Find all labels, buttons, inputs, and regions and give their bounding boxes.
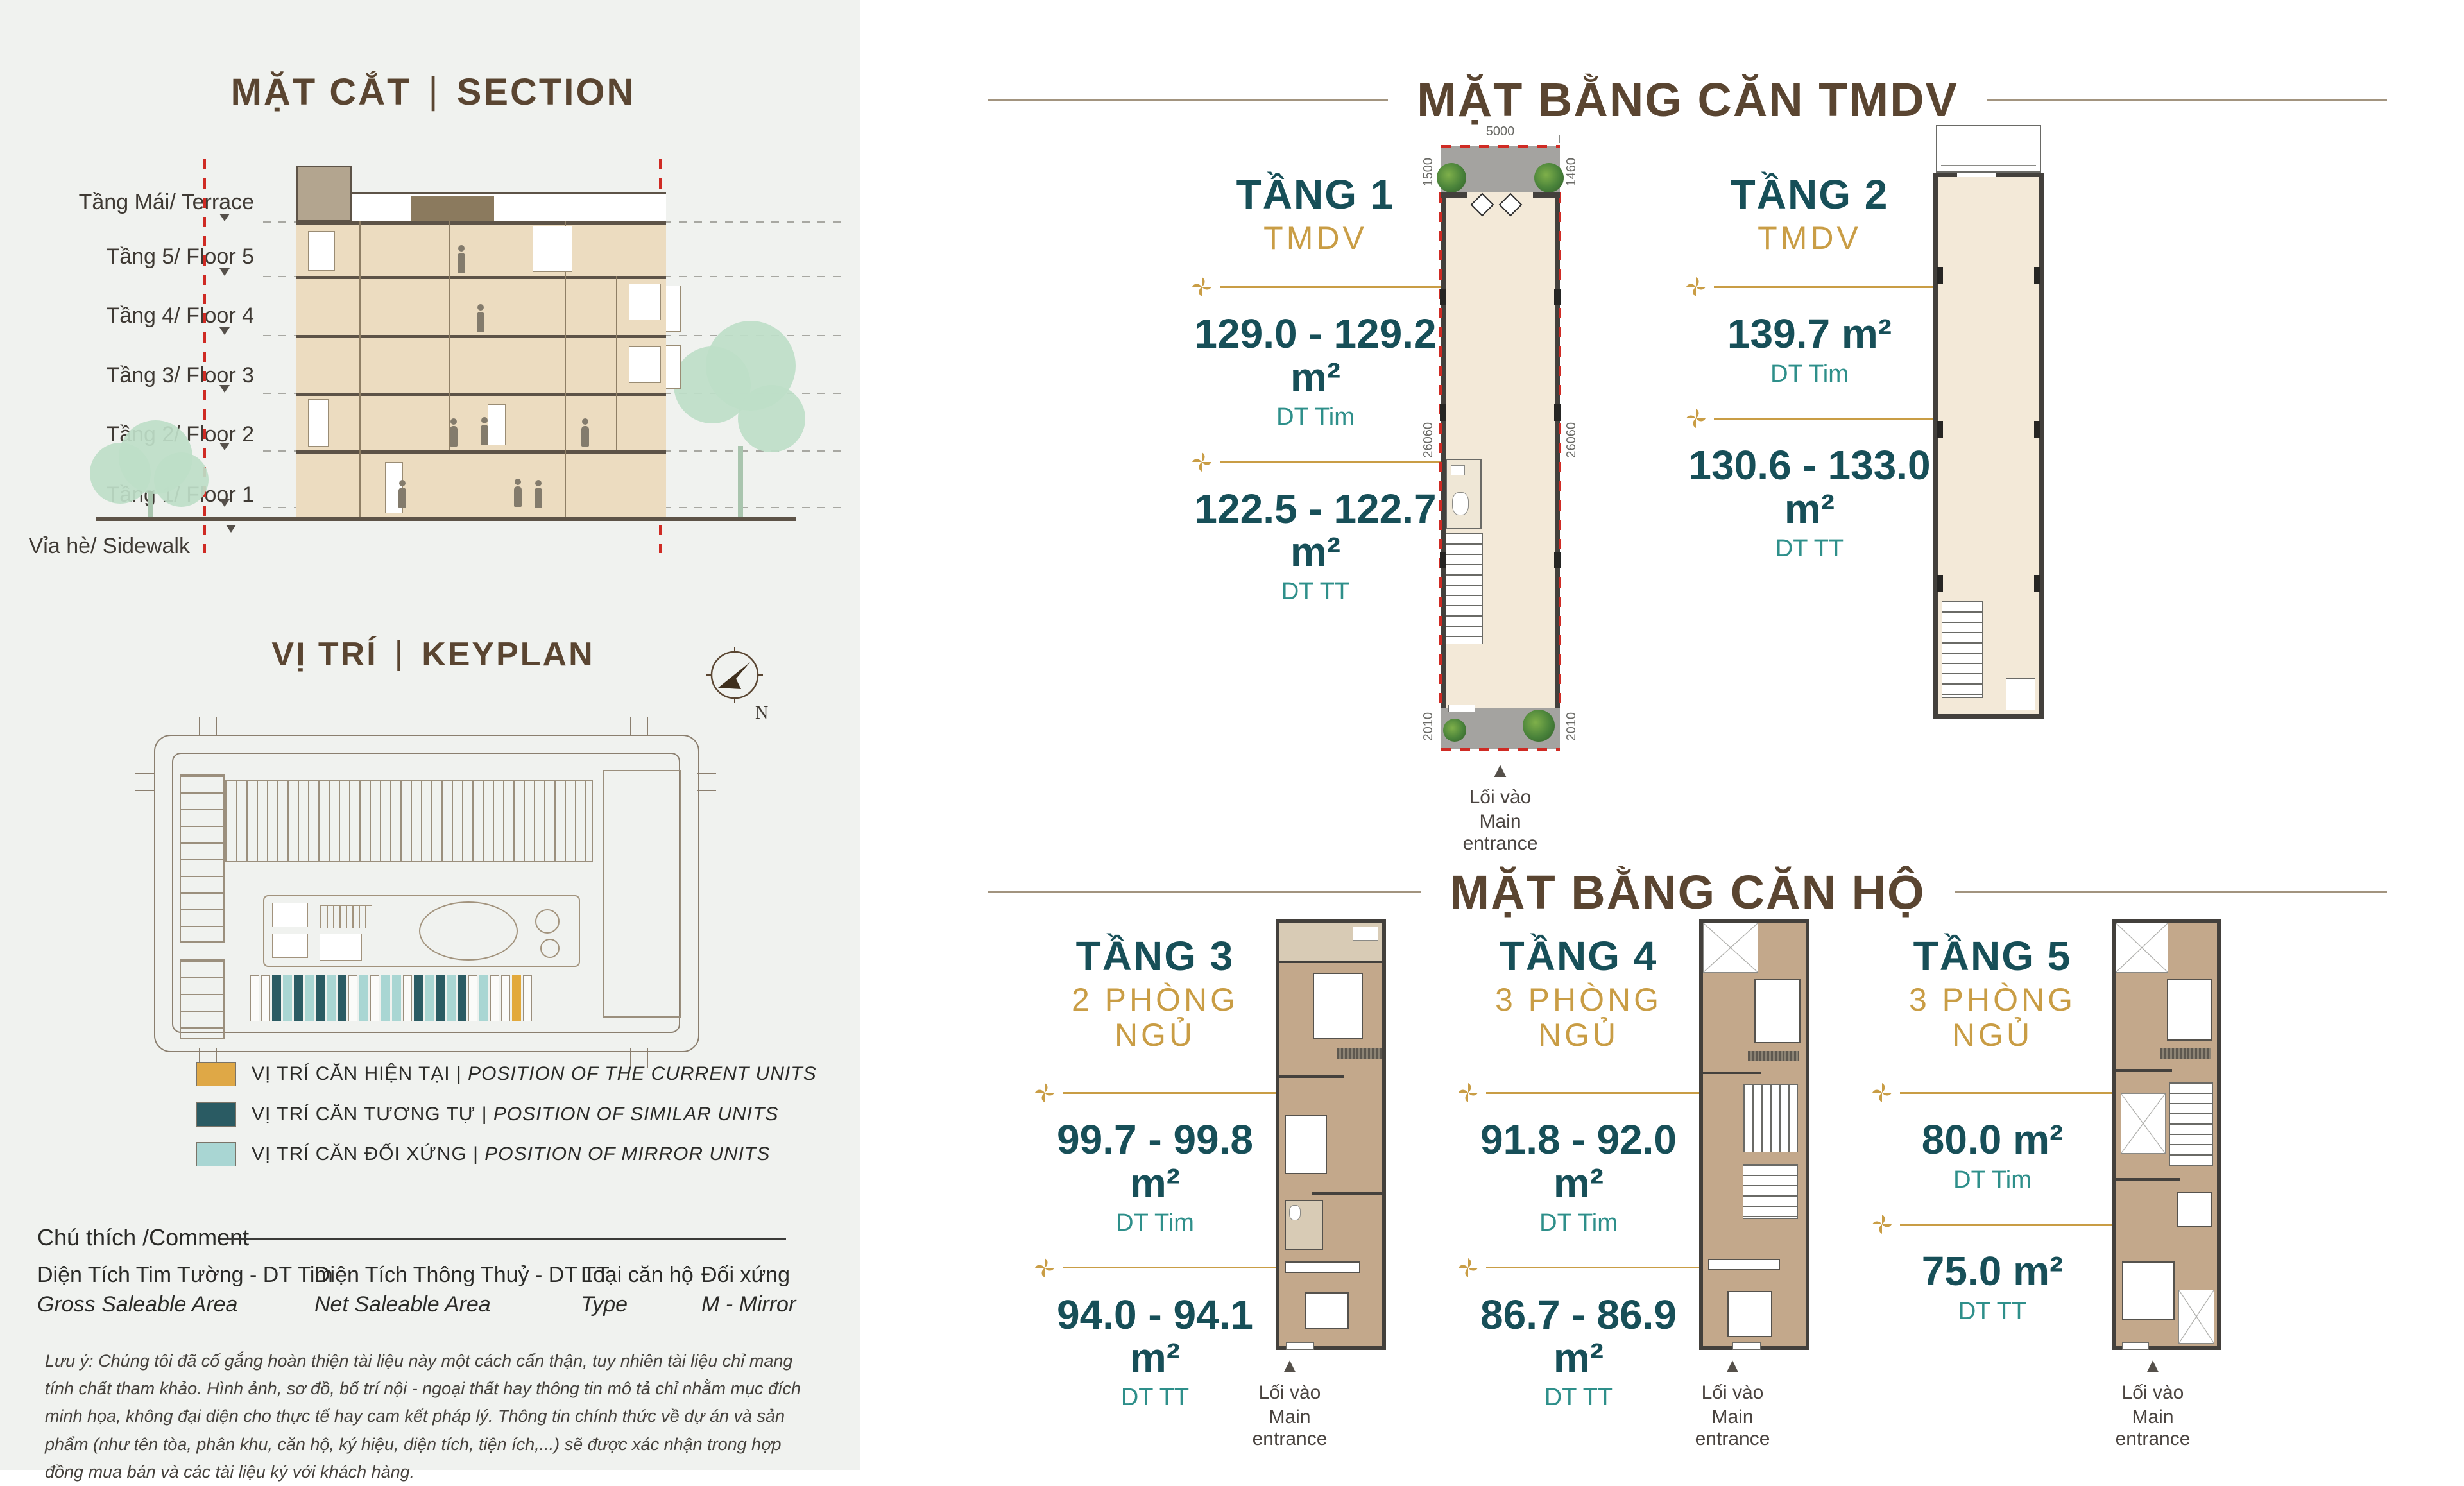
window xyxy=(629,284,661,320)
legend-similar-units: VỊ TRÍ CĂN TƯƠNG TỰ | POSITION OF SIMILA… xyxy=(196,1102,778,1127)
balcony-rail xyxy=(1941,165,2036,166)
keyplan-unit-strip xyxy=(359,975,368,1021)
term-gross-en: Gross Saleable Area xyxy=(37,1292,237,1317)
interior-wall xyxy=(616,276,617,450)
keyplan-unit-strip xyxy=(348,975,357,1021)
dim-top: 5000 xyxy=(1441,124,1560,139)
unit-gross-area: 91.8 - 92.0 m² xyxy=(1457,1118,1700,1204)
interior-wall xyxy=(449,221,450,450)
gold-line xyxy=(1063,1267,1277,1268)
keyplan-unit-strip xyxy=(479,975,488,1021)
pinwheel-icon xyxy=(1190,275,1213,298)
window xyxy=(308,231,335,271)
amenity-block xyxy=(272,903,308,927)
wc-room xyxy=(1446,459,1482,529)
road-stub xyxy=(697,773,716,774)
entrance-label-en: Main entrance xyxy=(2092,1406,2214,1450)
keyplan-title-vi: VỊ TRÍ xyxy=(271,635,377,674)
floor-label-sidewalk: Vỉa hè/ Sidewalk xyxy=(0,534,190,559)
entrance-label-vi: Lối vào xyxy=(2092,1382,2214,1404)
roof-left-wing xyxy=(296,166,352,221)
wardrobe xyxy=(2160,1048,2211,1059)
unit-type-label: 3 PHÒNG NGỦ xyxy=(1870,982,2114,1053)
floor-slab xyxy=(296,393,666,396)
gold-rule xyxy=(1190,450,1441,474)
door xyxy=(308,399,329,447)
legend-label-vi: VỊ TRÍ CĂN TƯƠNG TỰ xyxy=(252,1104,475,1125)
wall-pillar xyxy=(1554,289,1561,305)
gold-rule xyxy=(1684,275,1935,298)
person-silhouette xyxy=(534,480,543,508)
level-marker-icon xyxy=(219,214,230,221)
level-marker-icon xyxy=(219,327,230,335)
keyplan-unit-strip xyxy=(523,975,532,1021)
compass-north-label: N xyxy=(755,703,768,724)
road-stub xyxy=(630,717,631,736)
legend-separator: | xyxy=(473,1143,479,1165)
wall-pillar xyxy=(1440,404,1446,421)
legend-current-units: VỊ TRÍ CĂN HIỆN TẠI | POSITION OF THE CU… xyxy=(196,1062,817,1086)
wardrobe xyxy=(1748,1051,1799,1061)
keyplan-unit-strip xyxy=(392,975,401,1021)
red-boundary xyxy=(1439,192,1442,708)
unit-type-label: 3 PHÒNG NGỦ xyxy=(1457,982,1700,1053)
window xyxy=(629,346,661,383)
keyplan-unit-strip xyxy=(327,975,336,1021)
interior-wall xyxy=(1312,1192,1382,1195)
road-stub xyxy=(135,773,154,774)
legend-swatch-mirror xyxy=(196,1142,236,1166)
level-marker-icon xyxy=(219,385,230,393)
gold-rule xyxy=(1457,1081,1700,1104)
level-marker-icon xyxy=(219,499,230,507)
keyplan-drawing xyxy=(154,735,699,1052)
left-panel: MẶT CẮT | SECTION Tầng Mái/ Terrace Tầng… xyxy=(0,0,860,1470)
building-section-drawing xyxy=(296,192,666,520)
gold-rule xyxy=(1870,1213,2114,1236)
keyplan-unit-strip xyxy=(250,975,259,1021)
unit-info-tang2: TẦNG 2 TMDV 139.7 m² DT Tim 130.6 - 133.… xyxy=(1684,172,1935,563)
term-net-en: Net Saleable Area xyxy=(314,1292,491,1317)
staircase-lower xyxy=(1743,1164,1798,1219)
section-title-en: SECTION xyxy=(457,71,636,114)
unit-gross-area: 99.7 - 99.8 m² xyxy=(1033,1118,1277,1204)
floor-slab xyxy=(296,276,666,279)
entry-door-gap xyxy=(2122,1342,2149,1350)
legend-swatch-similar xyxy=(196,1102,236,1127)
unit-info-tang5: TẦNG 5 3 PHÒNG NGỦ 80.0 m² DT Tim 75.0 m… xyxy=(1870,934,2114,1325)
red-boundary xyxy=(1441,145,1560,148)
interior-wall xyxy=(359,221,361,520)
gold-rule xyxy=(1870,1081,2114,1104)
unit-floor-label: TẦNG 5 xyxy=(1870,934,2114,978)
wall-pillar xyxy=(2034,421,2041,438)
keyplan-unit-strip xyxy=(436,975,445,1021)
road-stub xyxy=(697,790,716,791)
stair-void xyxy=(2121,1093,2166,1154)
heading-rule-right xyxy=(1955,891,2387,893)
comment-title: Chú thích /Comment xyxy=(37,1224,249,1251)
floor-label-5: Tầng 5/ Floor 5 xyxy=(38,244,254,269)
gold-line xyxy=(1486,1267,1700,1268)
level-marker-icon xyxy=(219,268,230,276)
tree-icon xyxy=(154,452,209,507)
wc-room xyxy=(2006,678,2035,710)
entrance-label-tang1: ▲ Lối vào Main entrance xyxy=(1439,760,1561,855)
person-silhouette xyxy=(480,417,489,445)
bed xyxy=(1313,973,1363,1039)
keyplan-unit-strip xyxy=(338,975,346,1021)
entrance-door-leaf xyxy=(1471,193,1494,217)
entrance-label-en: Main entrance xyxy=(1439,811,1561,855)
unit-gross-area: 139.7 m² xyxy=(1684,312,1935,355)
entrance-arrow-icon: ▲ xyxy=(1672,1355,1793,1376)
wall-pillar xyxy=(1554,552,1561,568)
keyplan-unit-strip xyxy=(403,975,412,1021)
stair-bulkhead xyxy=(411,196,494,221)
person-silhouette xyxy=(513,479,522,507)
term-type-en: Type xyxy=(581,1292,628,1317)
tang1-interior xyxy=(1441,192,1560,708)
gold-line xyxy=(1486,1092,1700,1094)
brochure-page: { "misc": { "pipe": "|" }, "colors": { "… xyxy=(0,0,2464,1470)
unit-floor-label: TẦNG 2 xyxy=(1684,172,1935,217)
gold-line xyxy=(1900,1224,2114,1226)
term-mirror-vi: Đối xứng xyxy=(701,1263,790,1288)
unit-net-label: DT TT xyxy=(1684,536,1935,563)
interior-wall xyxy=(2116,1069,2172,1072)
person-silhouette xyxy=(398,480,407,508)
disclaimer-note: Lưu ý: Chúng tôi đã cố gắng hoàn thiện t… xyxy=(45,1347,821,1486)
entrance-door-leaf xyxy=(1499,193,1523,217)
t3-terrace xyxy=(1279,923,1382,963)
red-boundary xyxy=(1559,192,1561,708)
keyplan-unit-strip xyxy=(381,975,390,1021)
entrance-label-en: Main entrance xyxy=(1229,1406,1351,1450)
tree-trunk xyxy=(738,446,743,520)
plant-icon xyxy=(1523,710,1555,742)
interior-wall xyxy=(1279,1075,1344,1078)
window xyxy=(533,226,572,272)
staircase xyxy=(1446,533,1483,644)
interior-wall xyxy=(2116,1178,2180,1181)
bed xyxy=(1285,1115,1327,1174)
pinwheel-icon xyxy=(1870,1081,1894,1104)
unit-gross-label: DT Tim xyxy=(1684,361,1935,388)
title-separator: | xyxy=(395,634,406,672)
wall-pillar xyxy=(1554,404,1561,421)
amenity-court xyxy=(320,934,362,961)
gold-rule xyxy=(1033,1081,1277,1104)
section-title: MẶT CẮT | SECTION xyxy=(38,71,828,114)
plant-icon xyxy=(1437,163,1466,192)
apartment-heading-text: MẶT BẰNG CĂN HỘ xyxy=(1450,865,1925,919)
amenity-block xyxy=(320,905,372,928)
dim-left: 1500 xyxy=(1421,158,1436,187)
unit-floor-label: TẦNG 1 xyxy=(1190,172,1441,217)
kitchen-counter xyxy=(1285,1261,1360,1273)
unit-gross-label: DT Tim xyxy=(1870,1167,2114,1194)
entry-door-gap xyxy=(1286,1342,1314,1350)
legend-label: VỊ TRÍ CĂN HIỆN TẠI | POSITION OF THE CU… xyxy=(252,1063,817,1085)
entrance-label-en: Main entrance xyxy=(1672,1406,1793,1450)
entrance-label-vi: Lối vào xyxy=(1229,1382,1351,1404)
section-title-vi: MẶT CẮT xyxy=(231,71,412,114)
gold-line xyxy=(1220,461,1441,463)
road-stub xyxy=(135,790,154,791)
keyplan-unit-strip xyxy=(425,975,434,1021)
gold-line xyxy=(1063,1092,1277,1094)
dim-entry-right: 2010 xyxy=(1564,712,1579,741)
red-boundary xyxy=(1441,748,1560,751)
keyplan-amenity-area xyxy=(263,895,580,967)
legend-label: VỊ TRÍ CĂN TƯƠNG TỰ | POSITION OF SIMILA… xyxy=(252,1104,778,1125)
legend-mirror-units: VỊ TRÍ CĂN ĐỐI XỨNG | POSITION OF MIRROR… xyxy=(196,1142,770,1166)
wall-pillar xyxy=(1937,575,1943,592)
pinwheel-icon xyxy=(1457,1256,1480,1279)
tree-icon xyxy=(738,385,805,452)
unit-info-tang3: TẦNG 3 2 PHÒNG NGỦ 99.7 - 99.8 m² DT Tim… xyxy=(1033,934,1277,1412)
bed xyxy=(2122,1261,2175,1320)
person-silhouette xyxy=(457,245,466,273)
keyplan-unit-strip xyxy=(294,975,303,1021)
wc-fixture xyxy=(1289,1205,1301,1220)
entry-door-gap xyxy=(1733,1342,1761,1350)
term-gross-vi: Diện Tích Tim Tường - DT Tim xyxy=(37,1263,333,1288)
floorplan-tang1: 5000 1500 1460 26060 26060 2010 2010 xyxy=(1441,146,1560,752)
staircase xyxy=(1942,601,1983,698)
gold-line xyxy=(1900,1092,2114,1094)
keyplan-top-lots xyxy=(225,780,593,862)
amenity-feature xyxy=(535,909,560,934)
entrance-label-vi: Lối vào xyxy=(1439,787,1561,808)
entrance-arrow-icon: ▲ xyxy=(2092,1355,2214,1376)
dining-table xyxy=(1305,1292,1349,1329)
pinwheel-icon xyxy=(1684,407,1707,430)
keyplan-unit-strip xyxy=(447,975,456,1021)
unit-net-area: 86.7 - 86.9 m² xyxy=(1457,1294,1700,1379)
pinwheel-icon xyxy=(1033,1081,1056,1104)
floorplan-tang3 xyxy=(1276,919,1386,1350)
tmdv-heading-text: MẶT BẰNG CĂN TMDV xyxy=(1417,73,1958,127)
road-stub xyxy=(199,717,200,736)
entrance-label-vi: Lối vào xyxy=(1672,1382,1793,1404)
legend-label-en: POSITION OF SIMILAR UNITS xyxy=(493,1104,779,1125)
interior-wall xyxy=(1703,1072,1761,1074)
keyplan-left-lots xyxy=(180,959,225,1039)
unit-gross-label: DT Tim xyxy=(1190,404,1441,431)
keyplan-unit-strip xyxy=(272,975,281,1021)
unit-gross-area: 129.0 - 129.2 m² xyxy=(1190,312,1441,398)
bed xyxy=(1754,979,1801,1043)
legend-label-en: POSITION OF THE CURRENT UNITS xyxy=(468,1063,816,1084)
keyplan-unit-strip xyxy=(283,975,292,1021)
pinwheel-icon xyxy=(1190,450,1213,474)
wall-top-right xyxy=(1533,192,1560,198)
entrance-paving xyxy=(1441,708,1560,749)
dim-tick xyxy=(1559,135,1560,143)
keyplan-unit-strip xyxy=(370,975,379,1021)
door xyxy=(488,404,506,445)
front-terrace xyxy=(1441,146,1560,192)
dining-table xyxy=(1727,1291,1772,1337)
dim-side-left: 26060 xyxy=(1421,422,1436,458)
keyplan-unit-strip xyxy=(261,975,270,1021)
ground-line xyxy=(96,517,796,521)
dim-entry-left: 2010 xyxy=(1421,712,1436,741)
gold-line xyxy=(1714,418,1935,420)
entrance-label-tang4: ▲ Lối vào Main entrance xyxy=(1672,1355,1793,1450)
unit-net-label: DT TT xyxy=(1457,1385,1700,1412)
wall-pillar xyxy=(2034,267,2041,284)
entrance-label-tang5: ▲ Lối vào Main entrance xyxy=(2092,1355,2214,1450)
unit-gross-label: DT Tim xyxy=(1457,1210,1700,1237)
unit-gross-area: 80.0 m² xyxy=(1870,1118,2114,1161)
amenity-pool xyxy=(419,901,518,961)
dim-line xyxy=(1441,139,1560,139)
entrance-arrow-icon: ▲ xyxy=(1229,1355,1351,1376)
legend-label-en: POSITION OF MIRROR UNITS xyxy=(484,1143,770,1165)
legend-separator: | xyxy=(456,1063,462,1084)
legend-label-vi: VỊ TRÍ CĂN ĐỐI XỨNG xyxy=(252,1143,467,1165)
tmdv-section-heading: MẶT BẰNG CĂN TMDV xyxy=(988,73,2445,127)
wc-fixture xyxy=(1451,465,1465,475)
floor-label-4: Tầng 4/ Floor 4 xyxy=(38,303,254,329)
pinwheel-icon xyxy=(1870,1213,1894,1236)
plant-icon xyxy=(1534,163,1564,192)
gold-rule xyxy=(1457,1256,1700,1279)
plant-icon xyxy=(1443,719,1466,742)
legend-label-vi: VỊ TRÍ CĂN HIỆN TẠI xyxy=(252,1063,450,1084)
gold-line xyxy=(1220,286,1441,288)
term-type-vi: Loại căn hộ xyxy=(581,1263,694,1288)
pinwheel-icon xyxy=(1684,275,1707,298)
keyplan-unit-strip xyxy=(316,975,325,1021)
gold-rule xyxy=(1033,1256,1277,1279)
floor-label-terrace: Tầng Mái/ Terrace xyxy=(38,190,254,215)
keyplan-unit-strip xyxy=(305,975,314,1021)
legend-swatch-current xyxy=(196,1062,236,1086)
apartment-section-heading: MẶT BẰNG CĂN HỘ xyxy=(988,865,2464,919)
unit-info-tang1: TẦNG 1 TMDV 129.0 - 129.2 m² DT Tim 122.… xyxy=(1190,172,1441,606)
unit-gross-label: DT Tim xyxy=(1033,1210,1277,1237)
unit-type-label: TMDV xyxy=(1684,221,1935,256)
heading-rule-right xyxy=(1987,99,2387,101)
keyplan-unit-strip xyxy=(490,975,499,1021)
term-net-vi: Diện Tích Thông Thuỷ - DT TT xyxy=(314,1263,610,1288)
unit-net-area: 130.6 - 133.0 m² xyxy=(1684,444,1935,530)
entrance-label-tang3: ▲ Lối vào Main entrance xyxy=(1229,1355,1351,1450)
road-stub xyxy=(647,717,648,736)
floorplan-tang4 xyxy=(1699,919,1810,1350)
keyplan-unit-strip xyxy=(414,975,423,1021)
compass: N xyxy=(696,642,773,731)
unit-type-label: TMDV xyxy=(1190,221,1441,256)
t5-balcony xyxy=(2116,923,2168,973)
building-floors-fill xyxy=(296,221,666,520)
entry-door-gap xyxy=(1448,705,1475,712)
keyplan-unit-strips xyxy=(250,975,532,1021)
wc-fixture xyxy=(1452,492,1469,515)
amenity-block xyxy=(272,934,308,958)
tree-trunk xyxy=(148,491,153,520)
unit-net-label: DT TT xyxy=(1190,579,1441,606)
wall-pillar xyxy=(1440,289,1446,305)
unit-net-label: DT TT xyxy=(1870,1299,2114,1326)
heading-rule-left xyxy=(988,891,1421,893)
pinwheel-icon xyxy=(1457,1081,1480,1104)
wall-top-left xyxy=(1441,192,1467,198)
unit-type-label: 2 PHÒNG NGỦ xyxy=(1033,982,1277,1053)
person-silhouette xyxy=(476,304,485,332)
keyplan-unit-strip xyxy=(501,975,510,1021)
ac-unit xyxy=(1353,927,1378,941)
keyplan-unit-strip xyxy=(512,975,521,1021)
legend-separator: | xyxy=(482,1104,488,1125)
tang2-balcony xyxy=(1936,125,2041,173)
pinwheel-icon xyxy=(1033,1256,1056,1279)
comment-title-rule xyxy=(221,1238,786,1240)
level-marker-icon xyxy=(219,443,230,450)
unit-info-tang4: TẦNG 4 3 PHÒNG NGỦ 91.8 - 92.0 m² DT Tim… xyxy=(1457,934,1700,1412)
wall-pillar xyxy=(1937,267,1943,284)
unit-net-area: 75.0 m² xyxy=(1870,1250,2114,1293)
amenity-feature xyxy=(540,939,560,958)
floorplan-tang5 xyxy=(2112,919,2221,1350)
unit-floor-label: TẦNG 4 xyxy=(1457,934,1700,978)
gold-rule xyxy=(1190,275,1441,298)
keyplan-left-lots xyxy=(180,774,225,943)
wardrobe xyxy=(1337,1048,1382,1059)
person-silhouette xyxy=(581,418,590,447)
dim-side-right: 26060 xyxy=(1564,422,1579,458)
wall-pillar xyxy=(1937,421,1943,438)
dim-right: 1460 xyxy=(1564,158,1579,187)
keyplan-unit-strip xyxy=(458,975,466,1021)
keyplan-unit-strip xyxy=(468,975,477,1021)
term-mirror-en: M - Mirror xyxy=(701,1292,796,1317)
gold-line xyxy=(1714,286,1935,288)
unit-floor-label: TẦNG 3 xyxy=(1033,934,1277,978)
entrance-arrow-icon: ▲ xyxy=(1439,760,1561,780)
gold-rule xyxy=(1684,407,1935,430)
floor-slab xyxy=(296,221,666,225)
staircase xyxy=(2169,1082,2213,1166)
keyplan-right-lot xyxy=(603,770,681,1018)
floor-slab xyxy=(296,335,666,338)
floorplan-tang2 xyxy=(1933,125,2044,719)
sidewalk-marker-icon xyxy=(226,525,236,533)
balcony xyxy=(666,345,681,389)
t4-balcony xyxy=(1703,923,1758,973)
laundry xyxy=(2177,1192,2212,1227)
balcony xyxy=(666,286,681,332)
floor-slab xyxy=(296,450,666,454)
title-separator: | xyxy=(429,69,440,112)
staircase-upper xyxy=(1743,1084,1798,1152)
rear-balcony xyxy=(2178,1290,2214,1344)
balcony-door-gap xyxy=(1957,173,1996,177)
tang2-interior xyxy=(1933,173,2044,719)
unit-net-area: 122.5 - 122.7 m² xyxy=(1190,488,1441,574)
wall-pillar xyxy=(2034,575,2041,592)
person-silhouette xyxy=(449,418,458,447)
dim-tick xyxy=(1441,135,1441,143)
kitchen-counter xyxy=(1708,1259,1780,1270)
bathroom xyxy=(1285,1200,1323,1250)
road-stub xyxy=(216,717,217,736)
keyplan-title-en: KEYPLAN xyxy=(422,635,594,674)
